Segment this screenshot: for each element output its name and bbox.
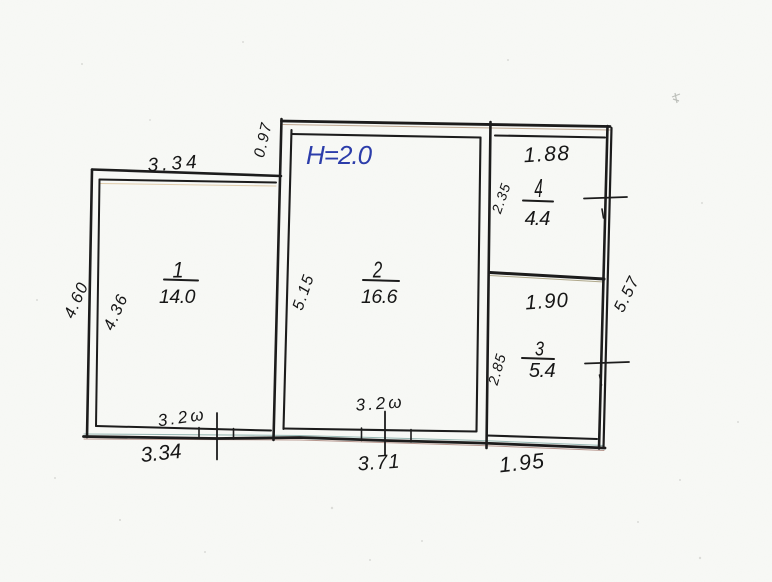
svg-text:4: 4 <box>534 175 542 203</box>
svg-text:3.34: 3.34 <box>140 440 183 467</box>
svg-text:5.4: 5.4 <box>529 360 556 382</box>
svg-text:1.90: 1.90 <box>524 288 569 314</box>
svg-text:3.71: 3.71 <box>357 451 401 476</box>
svg-text:3: 3 <box>535 338 544 360</box>
svg-text:16.6: 16.6 <box>361 286 398 308</box>
svg-text:2: 2 <box>372 258 382 283</box>
svg-text:4.4: 4.4 <box>525 208 551 230</box>
svg-text:14.0: 14.0 <box>159 286 196 308</box>
svg-text:3.34: 3.34 <box>147 152 201 177</box>
svg-text:1.95: 1.95 <box>498 449 546 478</box>
svg-text:H=2.0: H=2.0 <box>306 140 373 170</box>
svg-text:1: 1 <box>172 259 183 283</box>
svg-text:1.88: 1.88 <box>523 142 571 167</box>
svg-text:3.2ω: 3.2ω <box>355 392 405 414</box>
